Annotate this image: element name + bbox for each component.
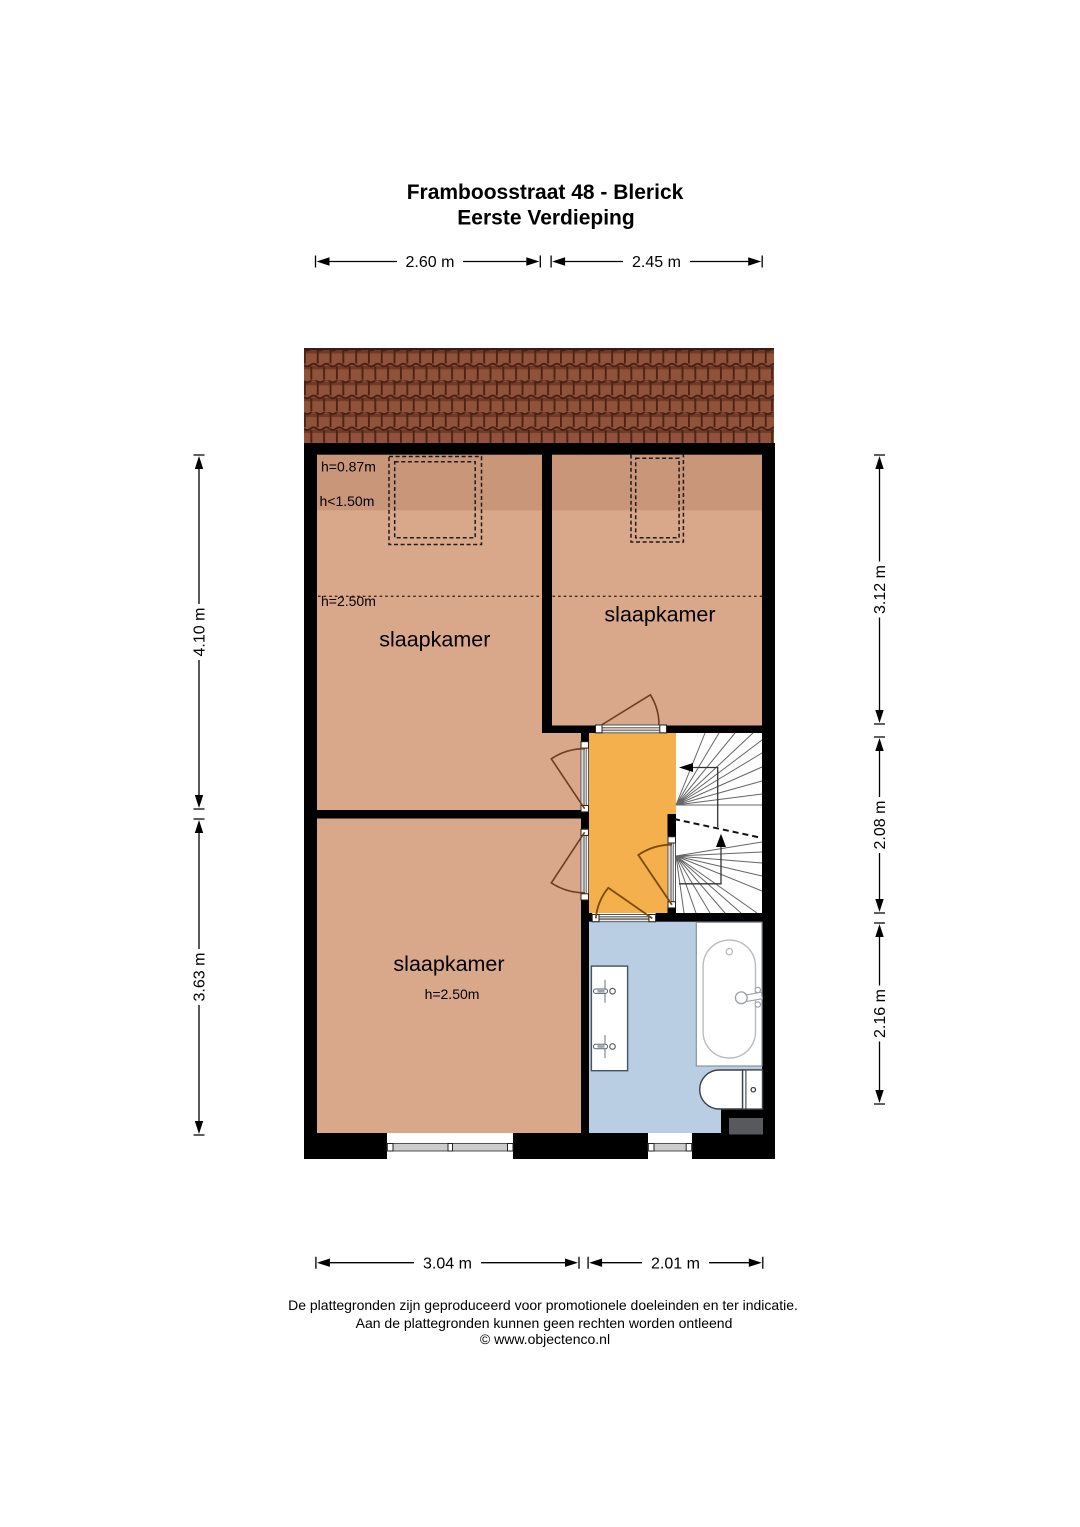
svg-text:slaapkamer: slaapkamer	[604, 603, 715, 627]
svg-text:Eerste Verdieping: Eerste Verdieping	[457, 206, 634, 229]
svg-text:Framboosstraat 48 - Blerick: Framboosstraat 48 - Blerick	[407, 181, 684, 204]
svg-text:2.60 m: 2.60 m	[406, 254, 455, 271]
svg-text:3.04 m: 3.04 m	[423, 1255, 472, 1272]
svg-text:h<1.50m: h<1.50m	[320, 493, 375, 509]
svg-text:3.12 m: 3.12 m	[872, 565, 889, 614]
svg-text:h=2.50m: h=2.50m	[425, 986, 480, 1002]
svg-text:4.10 m: 4.10 m	[192, 608, 209, 657]
svg-text:Aan de plattegronden kunnen ge: Aan de plattegronden kunnen geen rechten…	[356, 1315, 733, 1331]
svg-text:slaapkamer: slaapkamer	[379, 627, 490, 651]
svg-text:De plattegronden zijn geproduc: De plattegronden zijn geproduceerd voor …	[288, 1297, 798, 1313]
svg-text:h=2.50m: h=2.50m	[321, 593, 376, 609]
svg-text:h=0.87m: h=0.87m	[321, 458, 376, 474]
svg-text:2.45 m: 2.45 m	[632, 254, 681, 271]
svg-text:© www.objectenco.nl: © www.objectenco.nl	[480, 1331, 610, 1347]
svg-text:slaapkamer: slaapkamer	[393, 952, 504, 976]
svg-text:3.63 m: 3.63 m	[192, 953, 209, 1002]
svg-text:2.01 m: 2.01 m	[651, 1255, 700, 1272]
svg-text:2.16 m: 2.16 m	[872, 989, 889, 1038]
svg-text:2.08 m: 2.08 m	[872, 801, 889, 850]
